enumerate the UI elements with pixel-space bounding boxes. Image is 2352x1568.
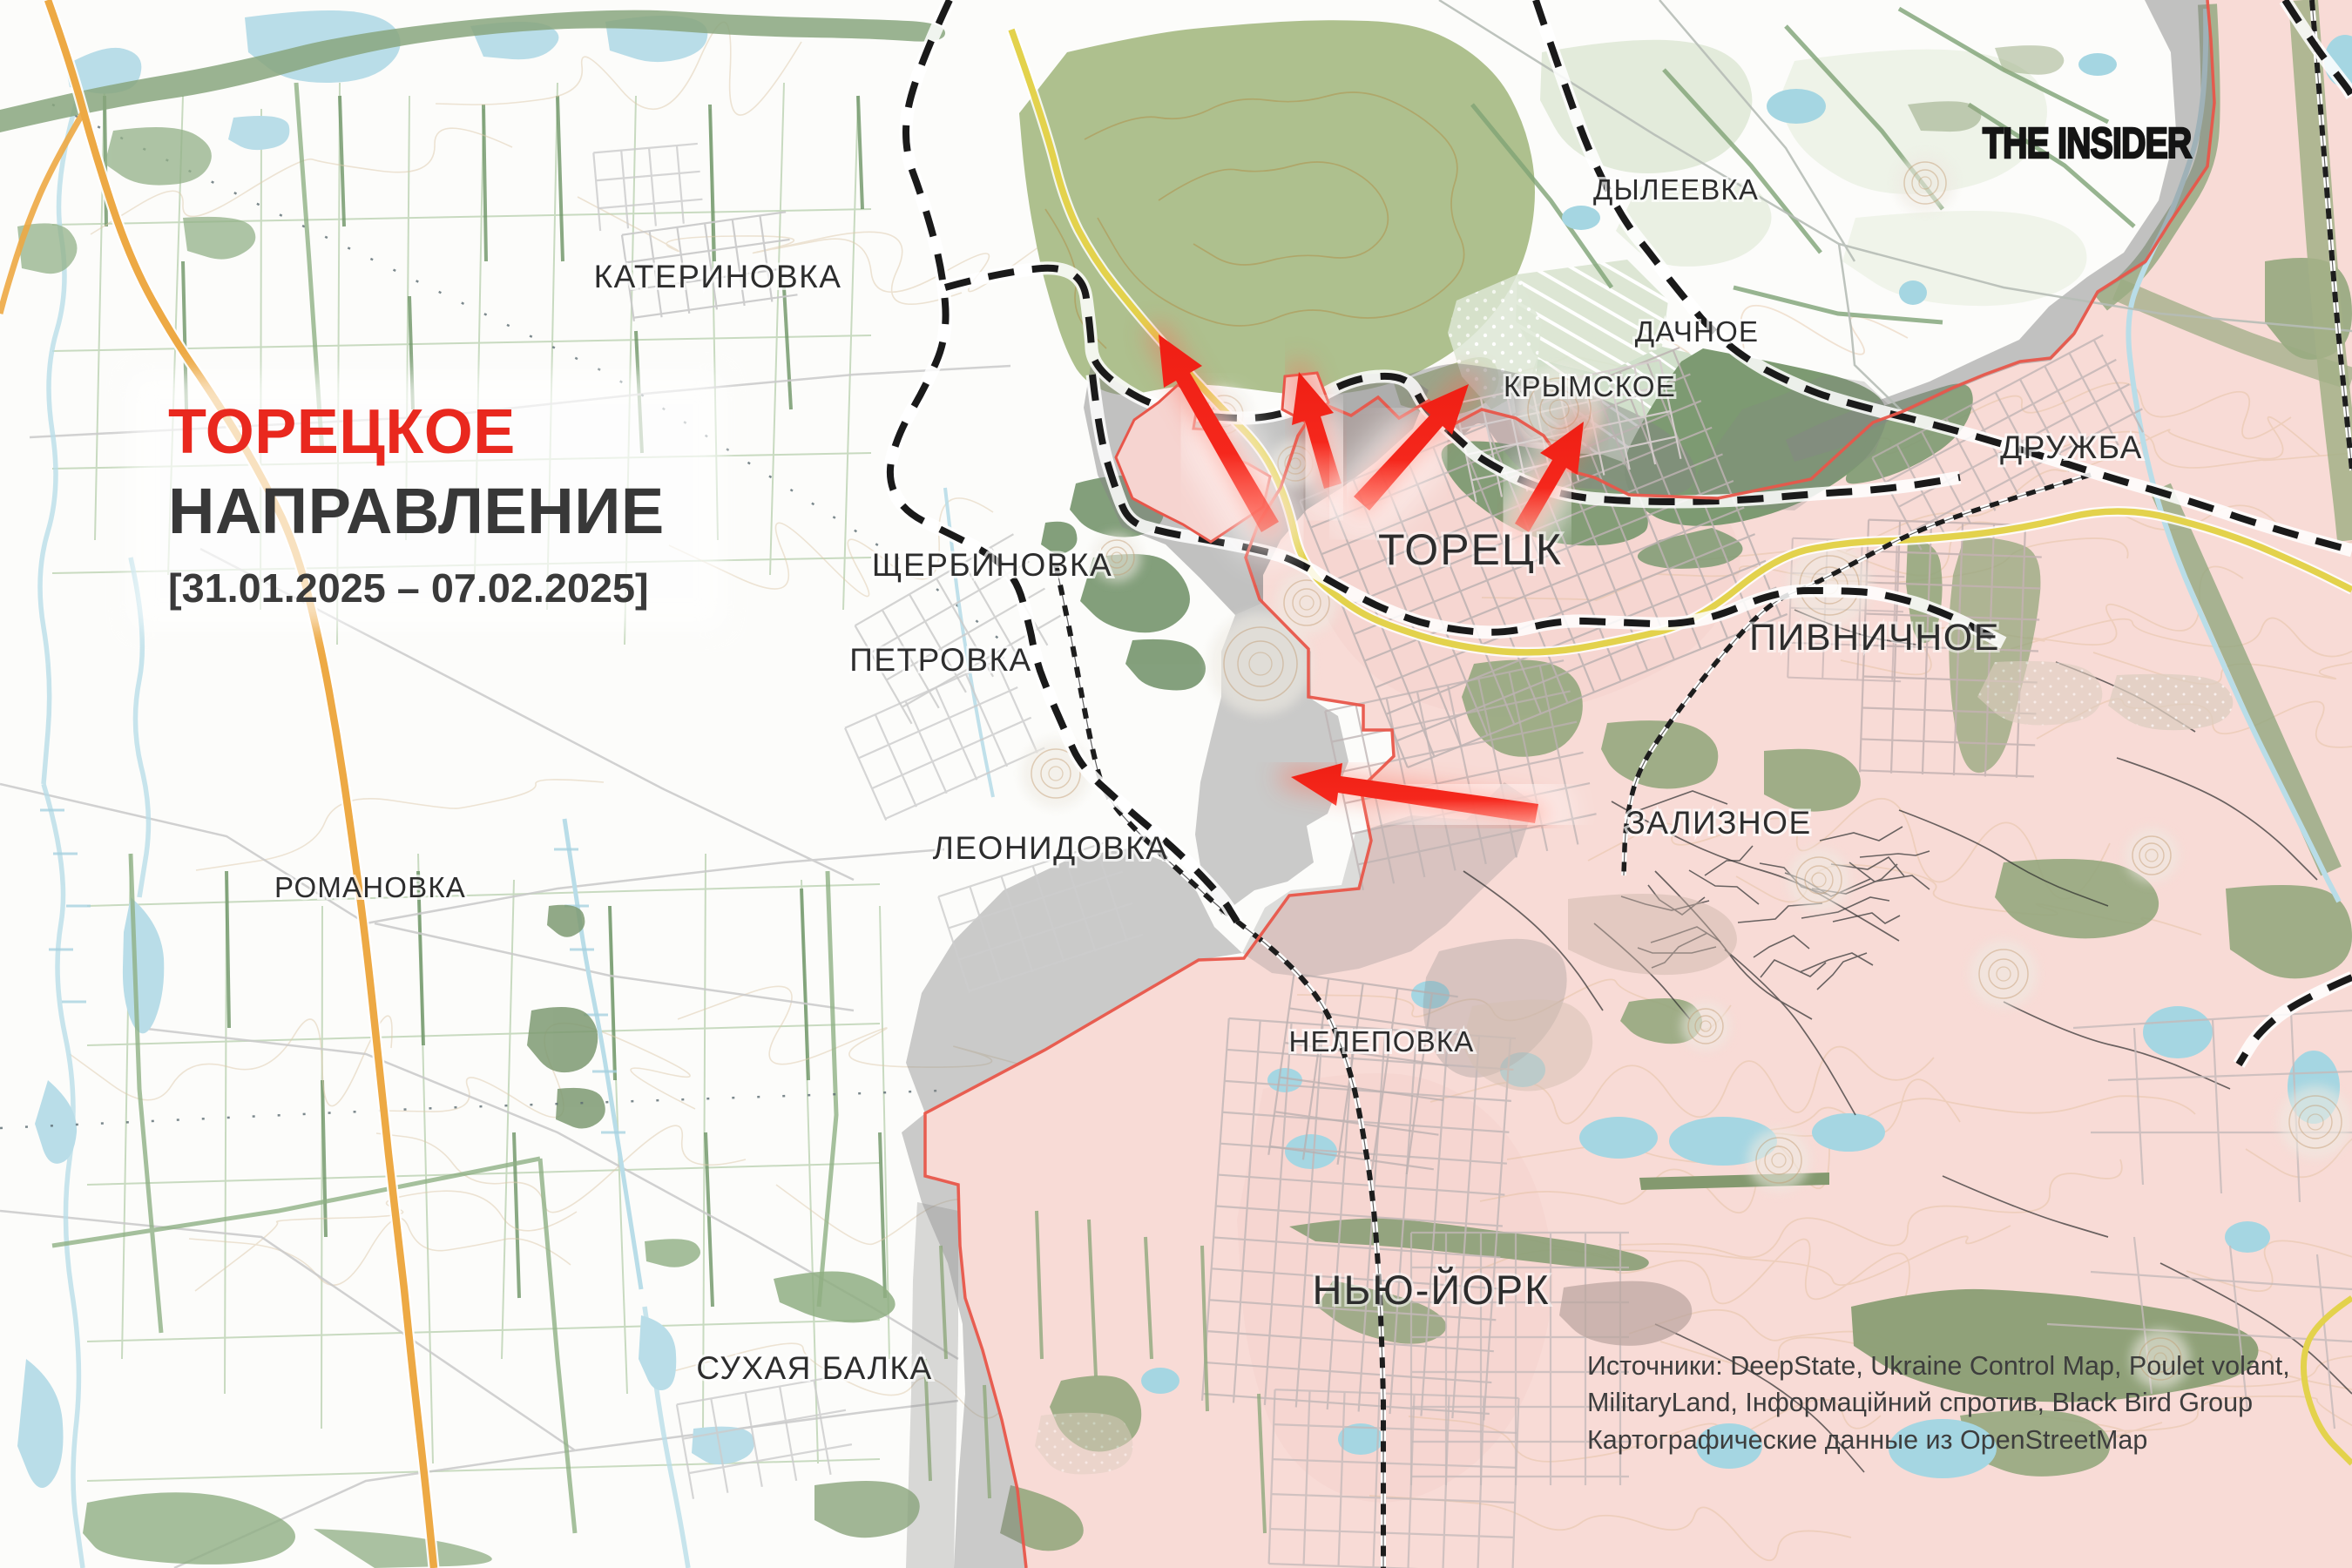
svg-text:НЬЮ-ЙОРК: НЬЮ-ЙОРК	[1313, 1267, 1551, 1313]
svg-text:Картографические данные из Ope: Картографические данные из OpenStreetMap	[1587, 1425, 2147, 1455]
svg-text:НАПРАВЛЕНИЕ: НАПРАВЛЕНИЕ	[168, 475, 665, 547]
svg-text:ЛЕОНИДОВКА: ЛЕОНИДОВКА	[933, 830, 1169, 866]
svg-text:ПЕТРОВКА: ПЕТРОВКА	[849, 642, 1031, 678]
svg-text:ТОРЕЦКОЕ: ТОРЕЦКОЕ	[168, 397, 516, 467]
svg-text:ПИВНИЧНОЕ: ПИВНИЧНОЕ	[1749, 617, 2000, 659]
svg-text:Источники: DeepState, Ukraine: Источники: DeepState, Ukraine Control Ma…	[1587, 1351, 2290, 1381]
svg-text:THE INSIDER: THE INSIDER	[1983, 120, 2192, 167]
svg-text:СУХАЯ БАЛКА: СУХАЯ БАЛКА	[696, 1350, 932, 1386]
svg-text:ДАЧНОЕ: ДАЧНОЕ	[1635, 315, 1760, 348]
svg-text:ЗАЛИЗНОЕ: ЗАЛИЗНОЕ	[1625, 805, 1811, 841]
svg-text:ДЫЛЕЕВКА: ДЫЛЕЕВКА	[1593, 173, 1759, 206]
svg-text:ТОРЕЦК: ТОРЕЦК	[1378, 525, 1563, 574]
svg-text:КАТЕРИНОВКА: КАТЕРИНОВКА	[594, 259, 842, 294]
svg-text:КРЫМСКОЕ: КРЫМСКОЕ	[1504, 370, 1676, 402]
svg-text:[31.01.2025 – 07.02.2025]: [31.01.2025 – 07.02.2025]	[168, 565, 649, 611]
svg-text:НЕЛЕПОВКА: НЕЛЕПОВКА	[1289, 1025, 1475, 1058]
svg-text:ДРУЖБА: ДРУЖБА	[2000, 429, 2143, 465]
svg-text:ЩЕРБИНОВКА: ЩЕРБИНОВКА	[872, 547, 1112, 583]
svg-text:РОМАНОВКА: РОМАНОВКА	[274, 871, 466, 903]
svg-text:MilitaryLand, Інформаційний сп: MilitaryLand, Інформаційний спротив, Bla…	[1587, 1388, 2253, 1417]
